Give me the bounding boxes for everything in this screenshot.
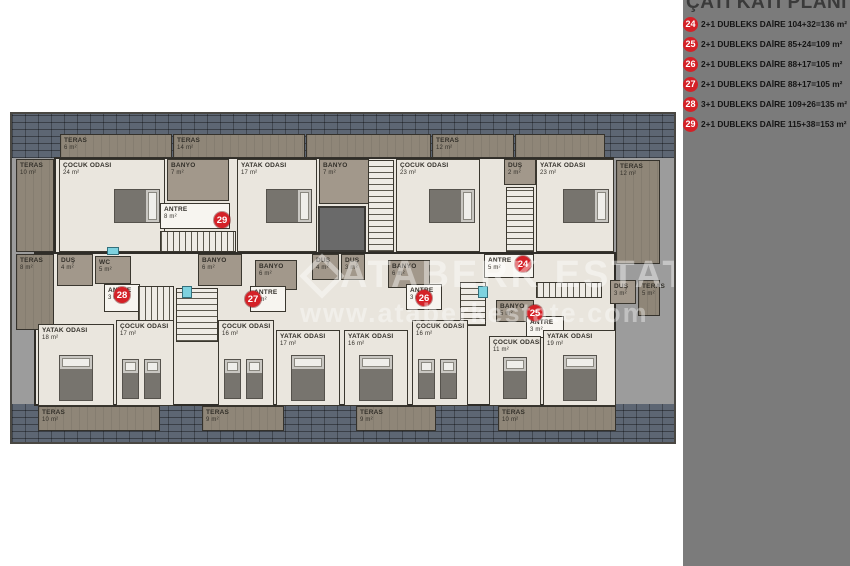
- bed-icon: [563, 355, 597, 401]
- room-label: ÇOCUK ODASI 11 m²: [493, 339, 541, 354]
- room-label: YATAK ODASI 19 m²: [547, 333, 592, 348]
- watermark-brand: ATABERK ESTATE: [340, 254, 676, 297]
- legend-unit-badge: 26: [683, 57, 698, 72]
- plan-area: ÇOCUK ODASI 16 m²: [218, 320, 274, 406]
- unit-number: 29: [217, 215, 228, 226]
- plan-area: [182, 286, 192, 298]
- room-label: YATAK ODASI 18 m²: [42, 327, 87, 342]
- room-label: TERAS 14 m²: [177, 137, 200, 152]
- bed-icon: [291, 355, 325, 401]
- unit-number: 27: [248, 294, 259, 305]
- room-label: ÇOCUK ODASI 23 m²: [400, 162, 448, 177]
- bed-icon: [429, 189, 475, 223]
- room-label: TERAS 6 m²: [64, 137, 87, 152]
- room-label: BANYO 6 m²: [202, 257, 226, 272]
- legend-item: 24 2+1 DUBLEKS DAİRE 104+32=136 m²: [683, 14, 850, 34]
- plan-area: TERAS 10 m²: [498, 406, 616, 431]
- plan-area: [515, 134, 605, 158]
- room-label: BANYO 7 m²: [171, 162, 195, 177]
- plan-area: [368, 160, 394, 252]
- room-label: YATAK ODASI 17 m²: [280, 333, 325, 348]
- plan-area: [318, 206, 366, 252]
- room-label: TERAS 8 m²: [20, 257, 43, 272]
- plan-area: TERAS 10 m²: [38, 406, 160, 431]
- bed-icon: [122, 359, 139, 399]
- unit-number-badge: 28: [114, 287, 130, 303]
- room-label: DUŞ 4 m²: [61, 257, 75, 272]
- plan-area: TERAS 9 m²: [202, 406, 284, 431]
- legend-item: 28 3+1 DUBLEKS DAİRE 109+26=135 m²: [683, 94, 850, 114]
- plan-area: TERAS 9 m²: [356, 406, 436, 431]
- plan-area: ÇOCUK ODASI 11 m²: [489, 336, 541, 406]
- room-label: DUŞ 2 m²: [508, 162, 522, 177]
- legend-sidebar: ÇATI KATI PLANI 24 2+1 DUBLEKS DAİRE 104…: [683, 0, 850, 566]
- room-label: YATAK ODASI 17 m²: [241, 162, 286, 177]
- room-label: TERAS 10 m²: [42, 409, 65, 424]
- room-label: TERAS 12 m²: [436, 137, 459, 152]
- room-label: TERAS 10 m²: [502, 409, 525, 424]
- legend-unit-text: 2+1 DUBLEKS DAİRE 88+17=105 m²: [701, 79, 842, 89]
- unit-number-badge: 27: [245, 291, 261, 307]
- floor-plan: TERAS 6 m² TERAS 14 m² TERAS 12 m²: [10, 112, 676, 444]
- legend-unit-badge: 25: [683, 37, 698, 52]
- legend-unit-badge: 28: [683, 97, 698, 112]
- plan-area: TERAS 8 m²: [16, 254, 54, 330]
- legend-unit-text: 2+1 DUBLEKS DAİRE 115+38=153 m²: [701, 119, 847, 129]
- legend-item: 26 2+1 DUBLEKS DAİRE 88+17=105 m²: [683, 54, 850, 74]
- room-label: TERAS 9 m²: [206, 409, 229, 424]
- room-label: BANYO 6 m²: [259, 263, 283, 278]
- unit-number: 28: [117, 290, 128, 301]
- plan-area: BANYO 6 m²: [198, 254, 242, 286]
- room-label: ÇOCUK ODASI 17 m²: [120, 323, 168, 338]
- plan-area: ÇOCUK ODASI 24 m²: [59, 159, 165, 252]
- room-label: BANYO 7 m²: [323, 162, 347, 177]
- plan-area: ÇOCUK ODASI 23 m²: [396, 159, 480, 252]
- plan-area: DUŞ 2 m²: [504, 159, 536, 185]
- room-label: WC 5 m²: [99, 259, 112, 274]
- plan-area: DUŞ 4 m²: [57, 254, 93, 286]
- bed-icon: [114, 189, 160, 223]
- legend-item: 27 2+1 DUBLEKS DAİRE 88+17=105 m²: [683, 74, 850, 94]
- plan-area: TERAS 12 m²: [616, 160, 660, 264]
- plan-area: WC 5 m²: [95, 256, 131, 284]
- plan-area: TERAS 14 m²: [173, 134, 305, 158]
- legend-unit-text: 2+1 DUBLEKS DAİRE 85+24=109 m²: [701, 39, 842, 49]
- legend-unit-text: 2+1 DUBLEKS DAİRE 104+32=136 m²: [701, 19, 847, 29]
- legend-unit-text: 3+1 DUBLEKS DAİRE 109+26=135 m²: [701, 99, 847, 109]
- plan-area: BANYO 7 m²: [167, 159, 229, 201]
- plan-area: YATAK ODASI 23 m²: [536, 159, 614, 252]
- legend-unit-badge: 24: [683, 17, 698, 32]
- plan-area: YATAK ODASI 16 m²: [344, 330, 408, 406]
- plan-area: ÇOCUK ODASI 17 m²: [116, 320, 174, 406]
- room-label: ÇOCUK ODASI 24 m²: [63, 162, 111, 177]
- plan-area: YATAK ODASI 17 m²: [237, 159, 317, 252]
- plan-area: [506, 187, 534, 252]
- plan-area: TERAS 6 m²: [60, 134, 172, 158]
- plan-area: YATAK ODASI 18 m²: [38, 324, 114, 406]
- room-label: YATAK ODASI 16 m²: [348, 333, 393, 348]
- plan-area: ÇOCUK ODASI 16 m²: [412, 320, 468, 406]
- legend-item: 25 2+1 DUBLEKS DAİRE 85+24=109 m²: [683, 34, 850, 54]
- room-label: TERAS 12 m²: [620, 163, 643, 178]
- watermark-url: www.ataberkestate.com: [300, 298, 649, 329]
- page-title: ÇATI KATI PLANI: [683, 0, 850, 14]
- legend-unit-text: 2+1 DUBLEKS DAİRE 88+17=105 m²: [701, 59, 842, 69]
- unit-number-badge: 29: [214, 212, 230, 228]
- plan-area: [107, 247, 119, 255]
- bed-icon: [440, 359, 457, 399]
- room-label: TERAS 9 m²: [360, 409, 383, 424]
- bed-icon: [563, 189, 609, 223]
- bed-icon: [59, 355, 93, 401]
- bed-icon: [224, 359, 241, 399]
- plan-area: YATAK ODASI 19 m²: [543, 330, 616, 406]
- room-label: TERAS 10 m²: [20, 162, 43, 177]
- plan-area: [160, 231, 236, 252]
- bed-icon: [246, 359, 263, 399]
- bed-icon: [266, 189, 312, 223]
- plan-area: BANYO 7 m²: [319, 159, 369, 204]
- plan-area: TERAS 10 m²: [16, 159, 54, 252]
- plan-area: YATAK ODASI 17 m²: [276, 330, 340, 406]
- bed-icon: [144, 359, 161, 399]
- plan-area: [306, 134, 431, 158]
- plan-area: TERAS 12 m²: [432, 134, 514, 158]
- room-label: ANTRE 8 m²: [164, 206, 187, 221]
- legend-unit-badge: 29: [683, 117, 698, 132]
- legend-item: 29 2+1 DUBLEKS DAİRE 115+38=153 m²: [683, 114, 850, 134]
- room-label: ÇOCUK ODASI 16 m²: [222, 323, 270, 338]
- bed-icon: [359, 355, 393, 401]
- room-label: YATAK ODASI 23 m²: [540, 162, 585, 177]
- legend-unit-badge: 27: [683, 77, 698, 92]
- bed-icon: [503, 357, 527, 399]
- bed-icon: [418, 359, 435, 399]
